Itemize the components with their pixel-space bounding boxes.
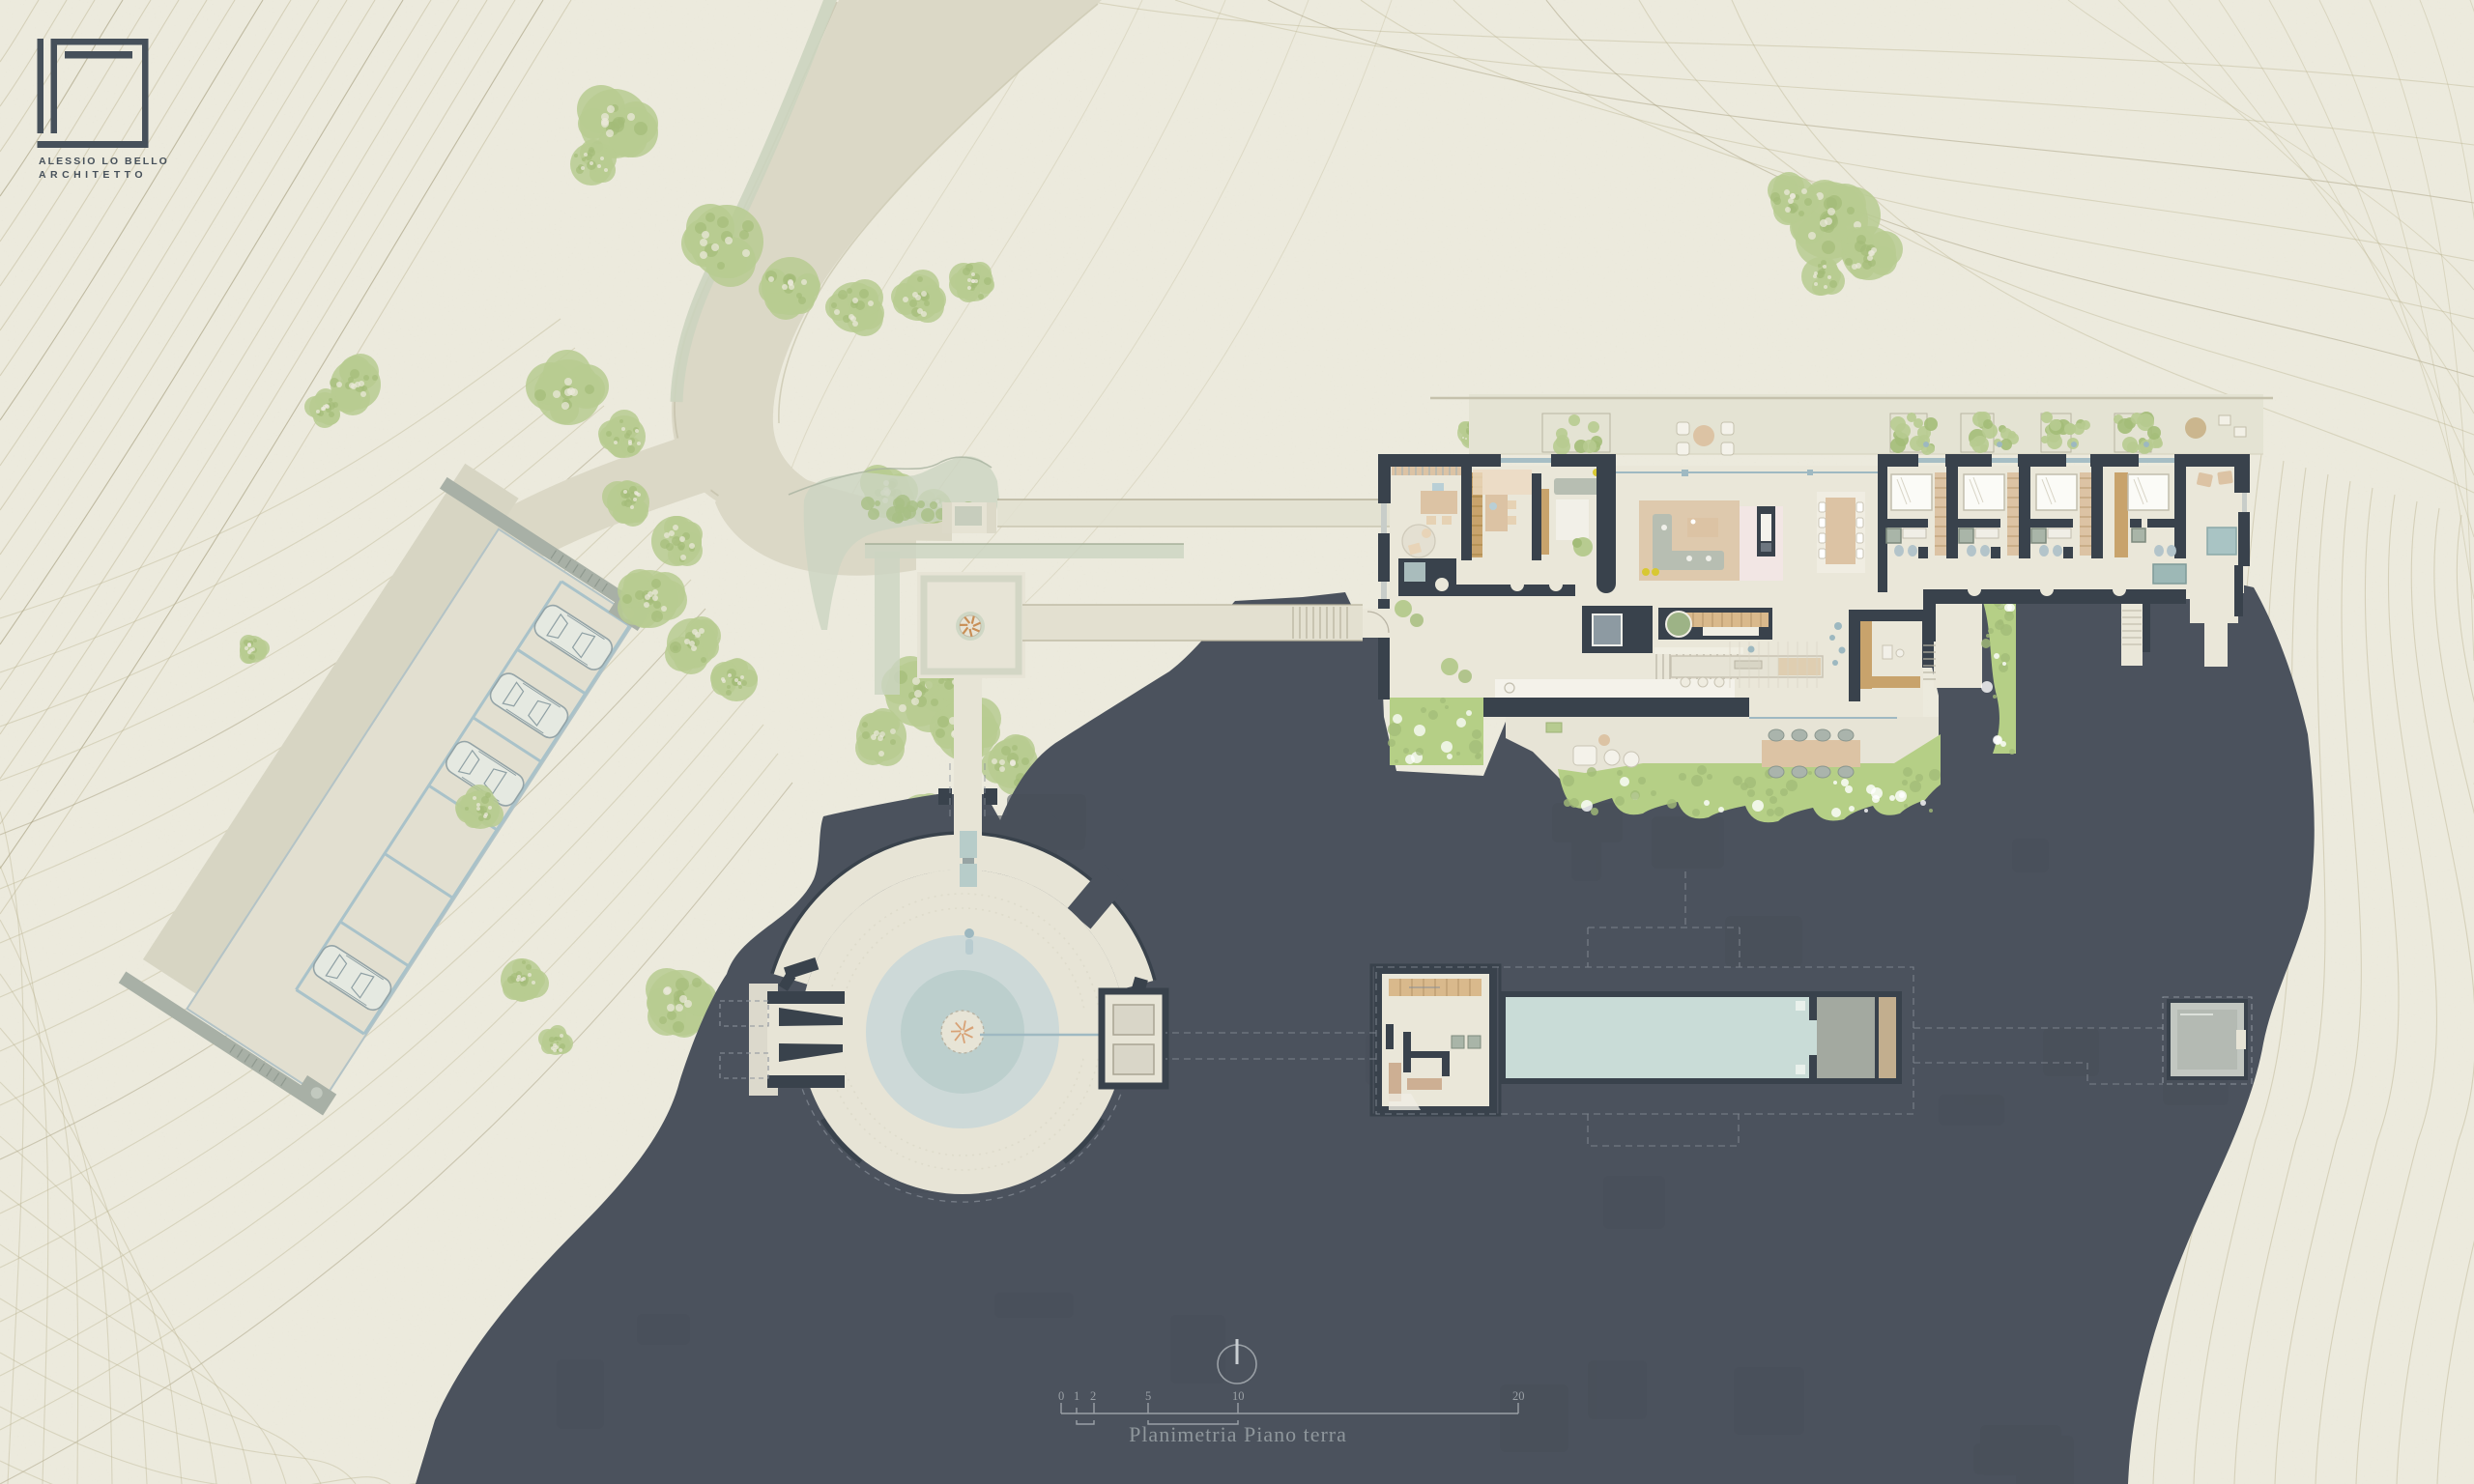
svg-text:20: 20 [1512, 1389, 1525, 1403]
svg-text:ARCHITETTO: ARCHITETTO [39, 169, 147, 181]
svg-text:0: 0 [1058, 1389, 1064, 1403]
svg-text:1: 1 [1074, 1389, 1079, 1403]
svg-text:ALESSIO LO BELLO: ALESSIO LO BELLO [39, 156, 169, 167]
svg-text:5: 5 [1145, 1389, 1151, 1403]
svg-text:Planimetria Piano terra: Planimetria Piano terra [1129, 1422, 1347, 1446]
svg-text:2: 2 [1090, 1389, 1096, 1403]
svg-text:10: 10 [1232, 1389, 1245, 1403]
